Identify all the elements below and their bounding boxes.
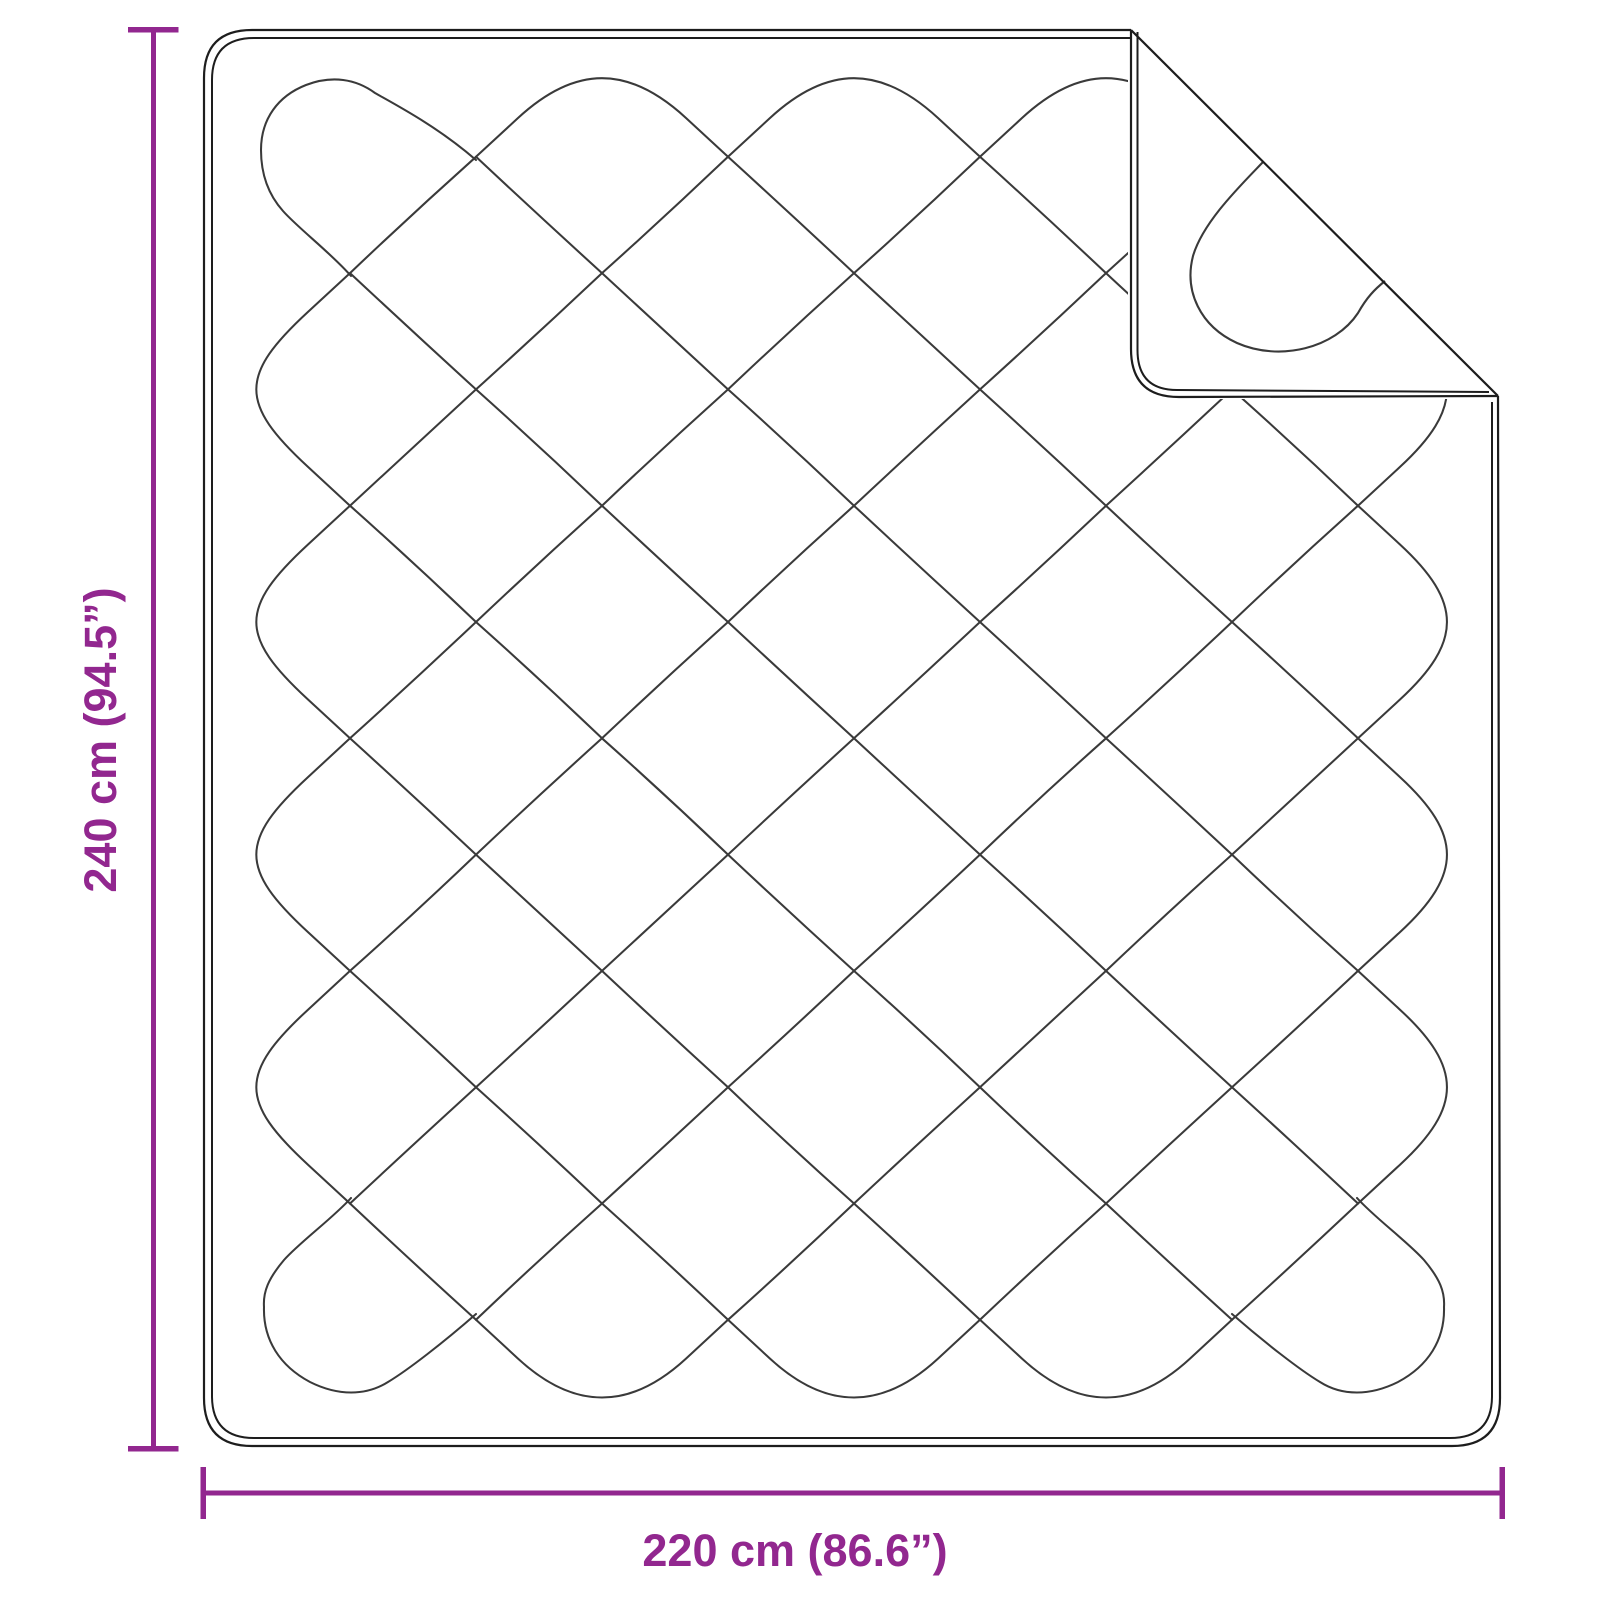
svg-text:240 cm (94.5”): 240 cm (94.5”)	[75, 587, 126, 892]
svg-text:220 cm (86.6”): 220 cm (86.6”)	[642, 1525, 947, 1576]
